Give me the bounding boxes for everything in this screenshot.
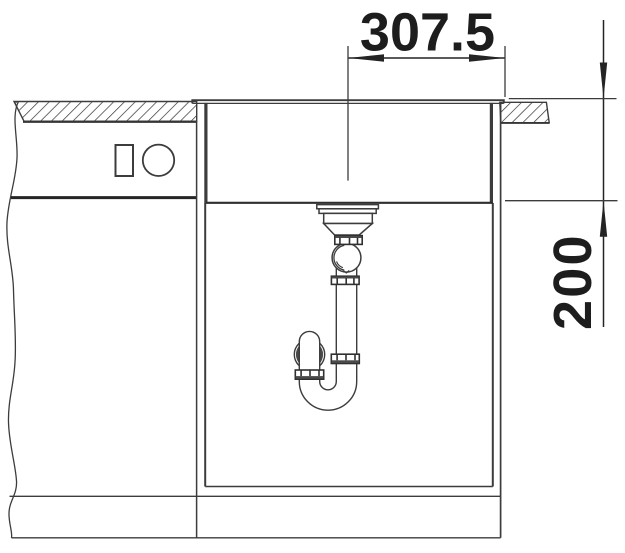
svg-text:200: 200 xyxy=(543,233,603,330)
svg-text:307.5: 307.5 xyxy=(360,2,495,62)
